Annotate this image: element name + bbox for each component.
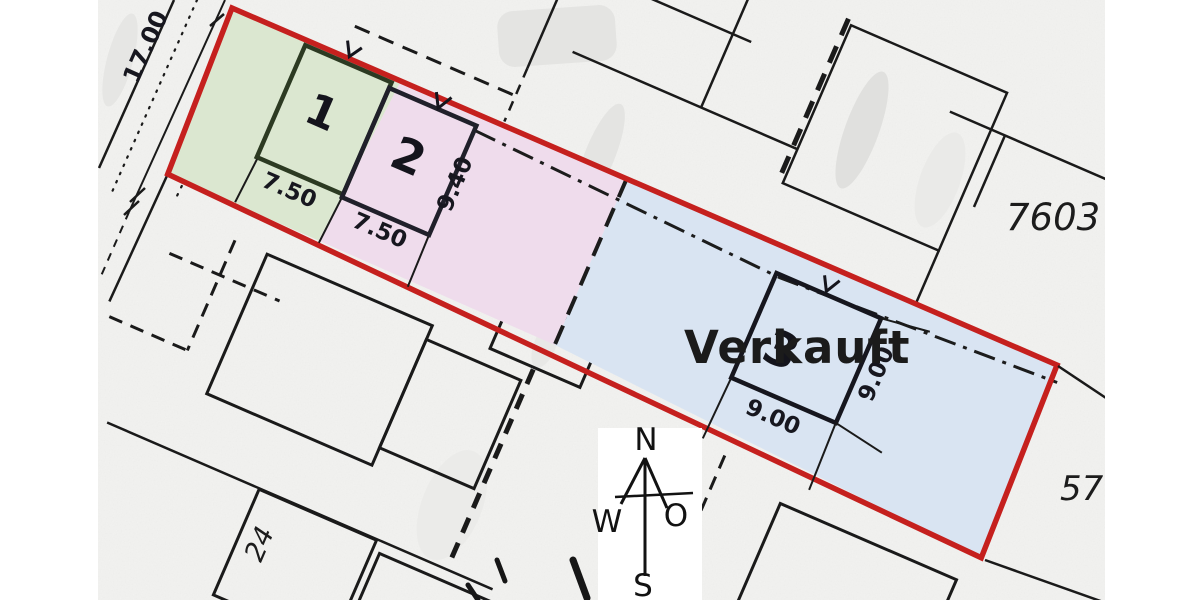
parcel-number-7603: 7603 (1006, 196, 1100, 239)
scan-margin-left (0, 0, 98, 600)
compass-east-label: O (664, 498, 688, 534)
smudge (496, 4, 618, 68)
parcel-number-57: 57 (1060, 469, 1104, 509)
compass-west-label: W (592, 504, 623, 540)
compass-north-label: N (634, 422, 657, 458)
sold-status-label: Verkauft (684, 321, 911, 374)
compass-rose: N W O S (592, 422, 702, 600)
site-plan-svg: 17.00 (0, 0, 1200, 600)
scan-margin-right (1105, 0, 1200, 600)
compass-south-label: S (633, 568, 653, 600)
cadastral-site-plan: 17.00 (0, 0, 1200, 600)
